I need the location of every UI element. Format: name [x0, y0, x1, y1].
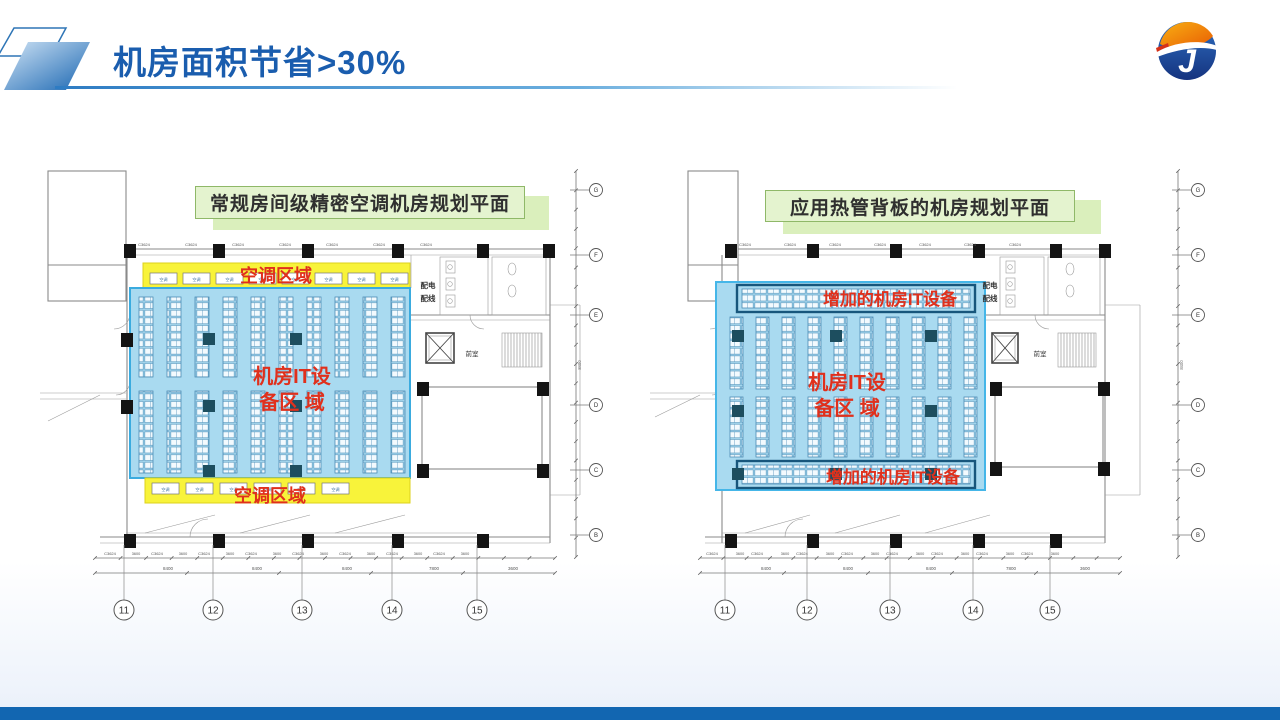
svg-text:C: C — [1196, 468, 1201, 474]
svg-text:3600: 3600 — [871, 552, 879, 556]
svg-text:C3624: C3624 — [292, 551, 305, 556]
ac-zone-top-label: 空调区域 — [240, 265, 312, 286]
svg-text:15: 15 — [471, 606, 483, 617]
svg-text:C3624: C3624 — [232, 242, 245, 247]
svg-text:C3624: C3624 — [976, 551, 989, 556]
vdim-number-left: 8400 — [577, 360, 582, 370]
svg-text:3600: 3600 — [736, 552, 744, 556]
svg-text:15: 15 — [1044, 606, 1056, 617]
lobby-label: 前室 — [466, 349, 480, 358]
power-room-right-label-2: 配线 — [983, 293, 998, 303]
svg-text:13: 13 — [884, 606, 896, 617]
it-zone-label-line2: 备区 域 — [258, 390, 325, 414]
svg-text:C3624: C3624 — [841, 551, 854, 556]
grid-bubbles-left: 1112131415 — [114, 600, 487, 620]
svg-text:3600: 3600 — [226, 552, 234, 556]
lobby-right-label: 前室 — [1034, 349, 1048, 358]
svg-text:C3624: C3624 — [386, 551, 399, 556]
svg-text:F: F — [594, 253, 598, 259]
svg-text:3600: 3600 — [508, 566, 519, 571]
svg-text:B: B — [1196, 533, 1200, 539]
svg-text:空调: 空调 — [332, 486, 340, 492]
svg-text:12: 12 — [207, 606, 219, 617]
svg-text:C3624: C3624 — [433, 551, 446, 556]
svg-text:C3624: C3624 — [784, 242, 797, 247]
svg-text:11: 11 — [119, 606, 130, 617]
power-room-label-2: 配线 — [421, 293, 436, 303]
svg-text:空调: 空调 — [162, 486, 170, 492]
svg-text:C3624: C3624 — [751, 551, 764, 556]
svg-text:空调: 空调 — [193, 276, 201, 282]
logo-letter: J — [1178, 43, 1197, 79]
svg-text:7800: 7800 — [429, 566, 440, 571]
svg-text:3600: 3600 — [132, 552, 140, 556]
stairs-right — [1061, 333, 1094, 367]
svg-text:3600: 3600 — [273, 552, 281, 556]
svg-text:3600: 3600 — [179, 552, 187, 556]
footer-bar — [0, 707, 1280, 720]
svg-text:3600: 3600 — [367, 552, 375, 556]
svg-text:B: B — [594, 533, 598, 539]
svg-text:C3624: C3624 — [185, 242, 198, 247]
power-room-right-label-1: 配电 — [983, 280, 998, 290]
svg-text:3600: 3600 — [320, 552, 328, 556]
svg-text:8400: 8400 — [926, 566, 937, 571]
svg-text:D: D — [594, 403, 599, 409]
svg-text:E: E — [1196, 313, 1200, 319]
floor-plan-left: 空调空调空调空调空调空调空调空调 空调空调空调空调空调空调 C3624C3624… — [40, 165, 620, 625]
dim-totals-left: 84008400840078003600 — [163, 566, 519, 571]
svg-text:G: G — [1196, 188, 1201, 194]
svg-text:C3624: C3624 — [1021, 551, 1034, 556]
it-zone-right-label-line2: 备区 域 — [813, 396, 880, 420]
svg-text:D: D — [1196, 403, 1201, 409]
svg-text:14: 14 — [386, 606, 398, 617]
svg-text:11: 11 — [720, 606, 731, 617]
svg-text:E: E — [594, 313, 598, 319]
svg-text:13: 13 — [296, 606, 308, 617]
svg-text:空调: 空调 — [160, 276, 168, 282]
svg-text:14: 14 — [967, 606, 979, 617]
svg-text:3600: 3600 — [1080, 566, 1091, 571]
svg-text:3600: 3600 — [826, 552, 834, 556]
svg-text:空调: 空调 — [325, 276, 333, 282]
svg-text:C3624: C3624 — [886, 551, 899, 556]
power-room-label-1: 配电 — [421, 280, 436, 290]
vgrid-bubbles-left: GFEDCB — [570, 184, 603, 542]
svg-text:C3624: C3624 — [104, 551, 117, 556]
svg-text:8400: 8400 — [843, 566, 854, 571]
svg-text:C3624: C3624 — [964, 242, 977, 247]
svg-text:7800: 7800 — [1006, 566, 1017, 571]
it-zone-label-line1: 机房IT设 — [253, 364, 331, 388]
svg-text:8400: 8400 — [761, 566, 772, 571]
dim-chain-2-right — [698, 571, 1122, 575]
title-underline — [55, 86, 1005, 89]
added-it-top-label: 增加的机房IT设备 — [823, 289, 958, 309]
svg-text:3600: 3600 — [461, 552, 469, 556]
svg-text:空调: 空调 — [358, 276, 366, 282]
vgrid-bubbles-right: GFEDCB — [1172, 184, 1205, 542]
svg-text:C3624: C3624 — [829, 242, 842, 247]
svg-text:3600: 3600 — [1051, 552, 1059, 556]
svg-text:8400: 8400 — [163, 566, 174, 571]
grid-bubbles-right: 1112131415 — [715, 600, 1060, 620]
dim-totals-right: 84008400840078003600 — [761, 566, 1091, 571]
svg-text:C3624: C3624 — [706, 551, 719, 556]
dim-chain-1-left — [93, 556, 557, 560]
it-zone-right-label-line1: 机房IT设 — [808, 370, 886, 394]
svg-text:12: 12 — [801, 606, 813, 617]
svg-text:3600: 3600 — [414, 552, 422, 556]
ac-zone-bottom-label: 空调区域 — [234, 485, 306, 506]
svg-text:8400: 8400 — [342, 566, 353, 571]
svg-text:C3624: C3624 — [931, 551, 944, 556]
svg-text:3600: 3600 — [961, 552, 969, 556]
stairs-left — [505, 333, 541, 367]
page-title: 机房面积节省>30% — [113, 36, 406, 84]
svg-text:C3624: C3624 — [138, 242, 151, 247]
svg-text:C: C — [594, 468, 599, 474]
svg-text:C3624: C3624 — [339, 551, 352, 556]
floor-plan-right: C3624C3624C3624C3624C3624C3624C3624 C362… — [650, 165, 1230, 625]
company-logo: J — [1154, 16, 1220, 84]
svg-text:空调: 空调 — [196, 486, 204, 492]
svg-text:空调: 空调 — [226, 276, 234, 282]
svg-text:C3624: C3624 — [279, 242, 292, 247]
svg-text:空调: 空调 — [391, 276, 399, 282]
svg-text:C3624: C3624 — [245, 551, 258, 556]
added-it-bottom-label: 增加的机房IT设备 — [826, 467, 961, 487]
svg-text:C3624: C3624 — [198, 551, 211, 556]
svg-text:C3624: C3624 — [919, 242, 932, 247]
window-labels-top: C3624C3624C3624C3624C3624C3624C3624 — [138, 242, 433, 247]
svg-text:C3624: C3624 — [1009, 242, 1022, 247]
vdim-number-right: 8400 — [1179, 360, 1184, 370]
svg-text:3600: 3600 — [916, 552, 924, 556]
svg-text:3600: 3600 — [1006, 552, 1014, 556]
svg-text:3600: 3600 — [781, 552, 789, 556]
svg-text:C3624: C3624 — [373, 242, 386, 247]
dim-chain-2-left — [93, 571, 557, 575]
svg-text:C3624: C3624 — [420, 242, 433, 247]
dim-chain-1-right — [698, 556, 1122, 560]
svg-text:G: G — [594, 188, 599, 194]
svg-text:C3624: C3624 — [151, 551, 164, 556]
svg-text:C3624: C3624 — [739, 242, 752, 247]
svg-text:C3624: C3624 — [326, 242, 339, 247]
svg-text:F: F — [1196, 253, 1200, 259]
svg-text:C3624: C3624 — [874, 242, 887, 247]
svg-text:8400: 8400 — [252, 566, 263, 571]
